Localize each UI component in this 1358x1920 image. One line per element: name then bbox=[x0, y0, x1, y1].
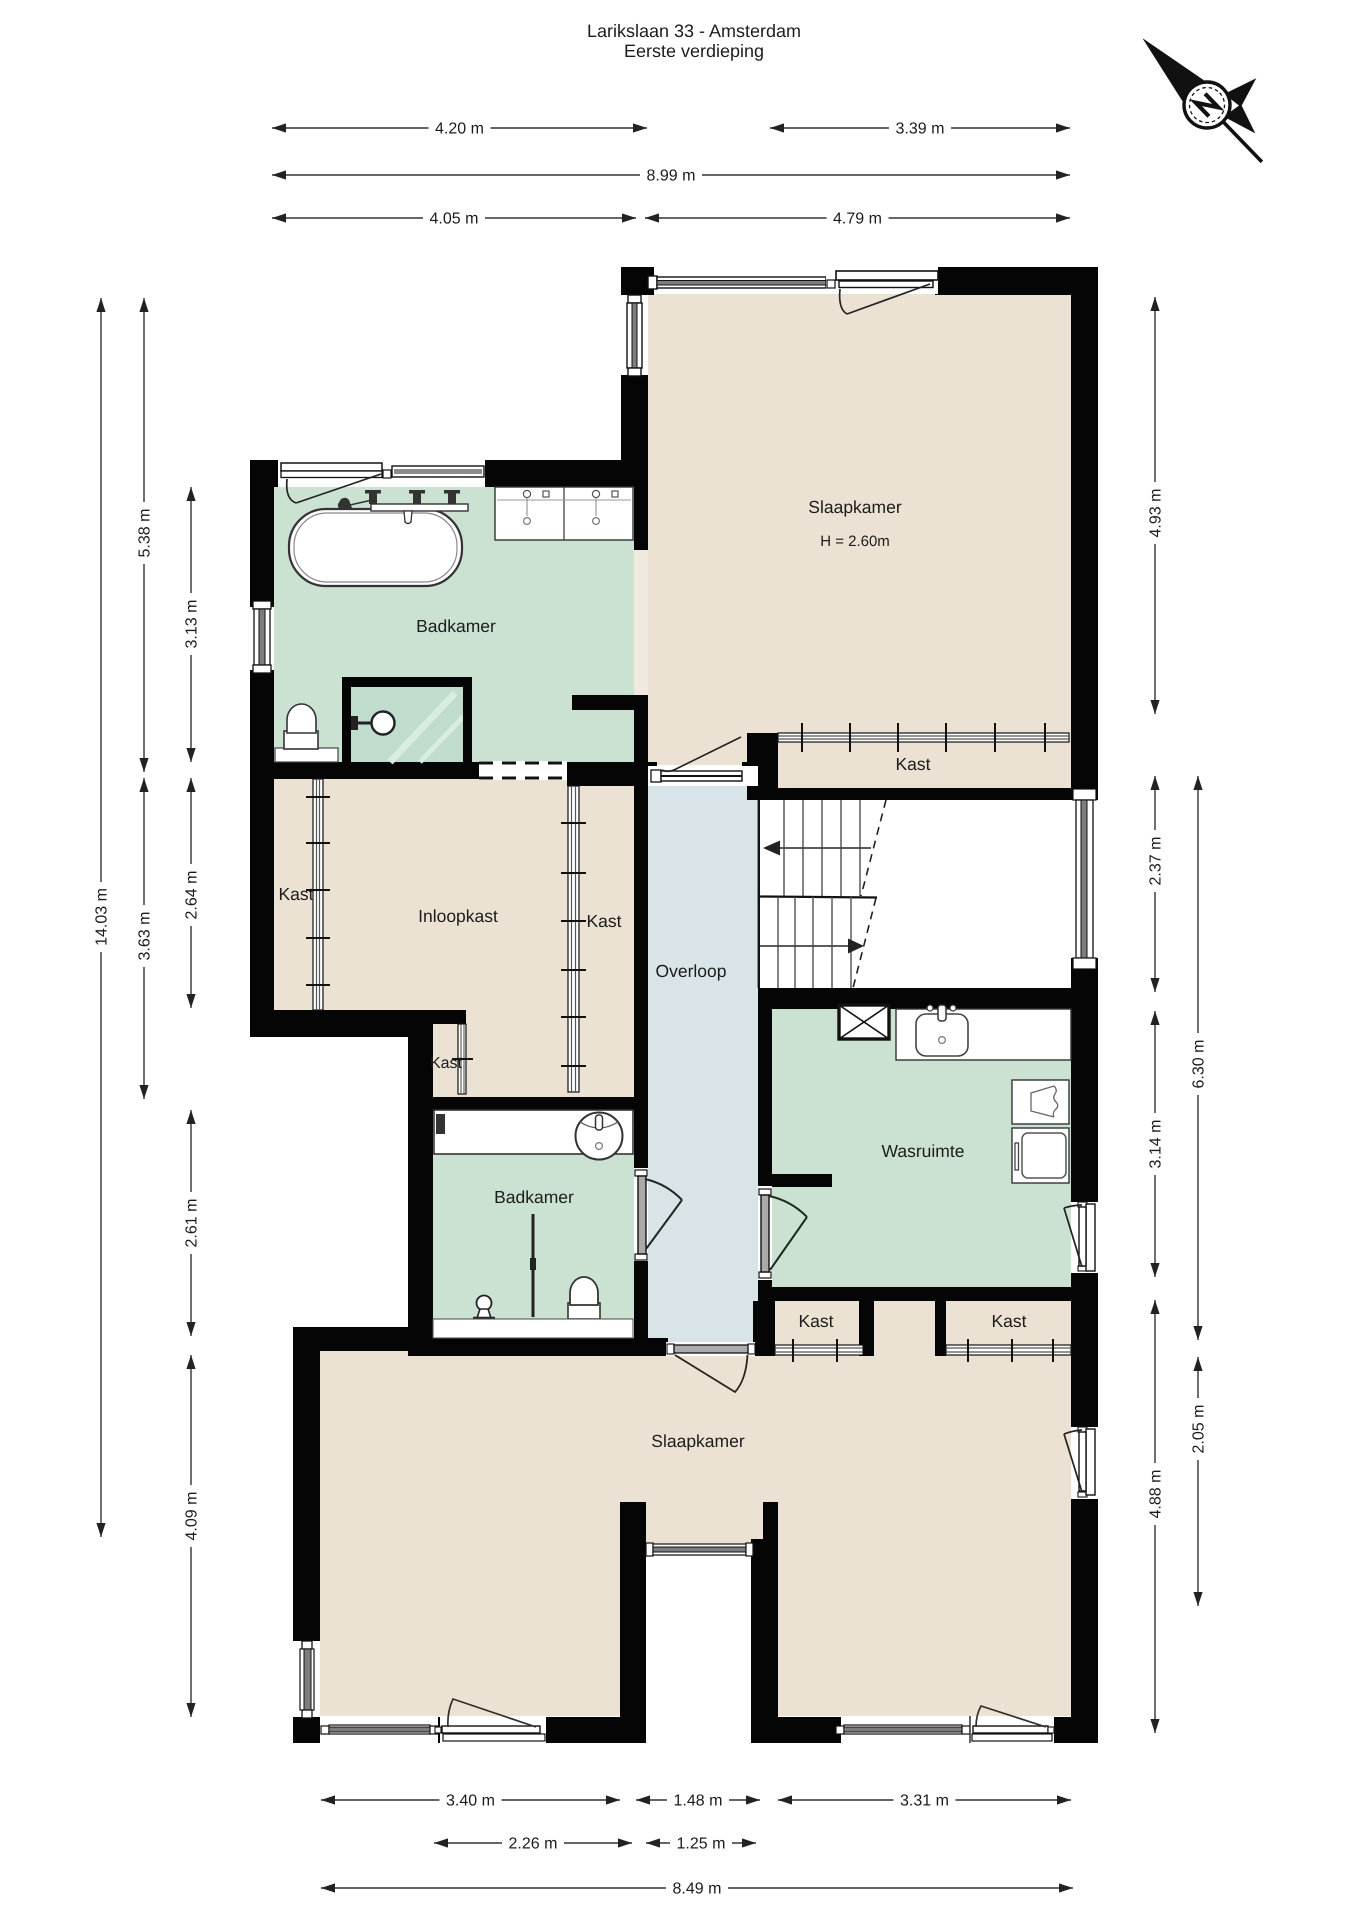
svg-text:4.05 m: 4.05 m bbox=[430, 211, 479, 228]
svg-text:Kast: Kast bbox=[278, 884, 313, 904]
svg-text:H = 2.60m: H = 2.60m bbox=[820, 533, 890, 550]
svg-text:Inloopkast: Inloopkast bbox=[418, 906, 498, 926]
svg-text:14.03 m: 14.03 m bbox=[94, 888, 111, 946]
svg-text:2.26 m: 2.26 m bbox=[509, 1836, 558, 1853]
svg-text:6.30 m: 6.30 m bbox=[1191, 1040, 1208, 1089]
svg-text:Eerste verdieping: Eerste verdieping bbox=[624, 41, 764, 61]
svg-text:Kast: Kast bbox=[991, 1311, 1026, 1331]
svg-text:4.20 m: 4.20 m bbox=[435, 121, 484, 138]
svg-text:Slaapkamer: Slaapkamer bbox=[808, 497, 902, 517]
svg-text:Badkamer: Badkamer bbox=[416, 616, 496, 636]
svg-text:Kast: Kast bbox=[895, 754, 930, 774]
svg-text:3.63 m: 3.63 m bbox=[137, 912, 154, 961]
svg-text:3.39 m: 3.39 m bbox=[896, 121, 945, 138]
svg-text:5.38 m: 5.38 m bbox=[137, 509, 154, 558]
svg-text:Overloop: Overloop bbox=[655, 961, 726, 981]
svg-text:4.09 m: 4.09 m bbox=[184, 1492, 201, 1541]
svg-text:1.48 m: 1.48 m bbox=[674, 1793, 723, 1810]
svg-text:Kast: Kast bbox=[430, 1055, 463, 1072]
svg-text:4.79 m: 4.79 m bbox=[833, 211, 882, 228]
svg-text:2.37 m: 2.37 m bbox=[1148, 837, 1165, 886]
svg-text:Slaapkamer: Slaapkamer bbox=[651, 1431, 745, 1451]
svg-text:Badkamer: Badkamer bbox=[494, 1187, 574, 1207]
svg-text:3.40 m: 3.40 m bbox=[446, 1793, 495, 1810]
svg-text:Wasruimte: Wasruimte bbox=[882, 1141, 965, 1161]
svg-text:Kast: Kast bbox=[798, 1311, 833, 1331]
svg-text:4.88 m: 4.88 m bbox=[1148, 1470, 1165, 1519]
svg-text:1.25 m: 1.25 m bbox=[677, 1836, 726, 1853]
svg-text:8.49 m: 8.49 m bbox=[673, 1881, 722, 1898]
svg-text:3.14 m: 3.14 m bbox=[1148, 1120, 1165, 1169]
svg-text:2.05 m: 2.05 m bbox=[1191, 1405, 1208, 1454]
svg-text:3.13 m: 3.13 m bbox=[184, 600, 201, 649]
svg-text:8.99 m: 8.99 m bbox=[647, 168, 696, 185]
svg-text:Kast: Kast bbox=[586, 911, 621, 931]
svg-text:4.93 m: 4.93 m bbox=[1148, 489, 1165, 538]
svg-text:Larikslaan 33 - Amsterdam: Larikslaan 33 - Amsterdam bbox=[587, 21, 801, 41]
svg-text:2.61 m: 2.61 m bbox=[184, 1199, 201, 1248]
svg-text:2.64 m: 2.64 m bbox=[184, 871, 201, 920]
svg-text:3.31 m: 3.31 m bbox=[900, 1793, 949, 1810]
